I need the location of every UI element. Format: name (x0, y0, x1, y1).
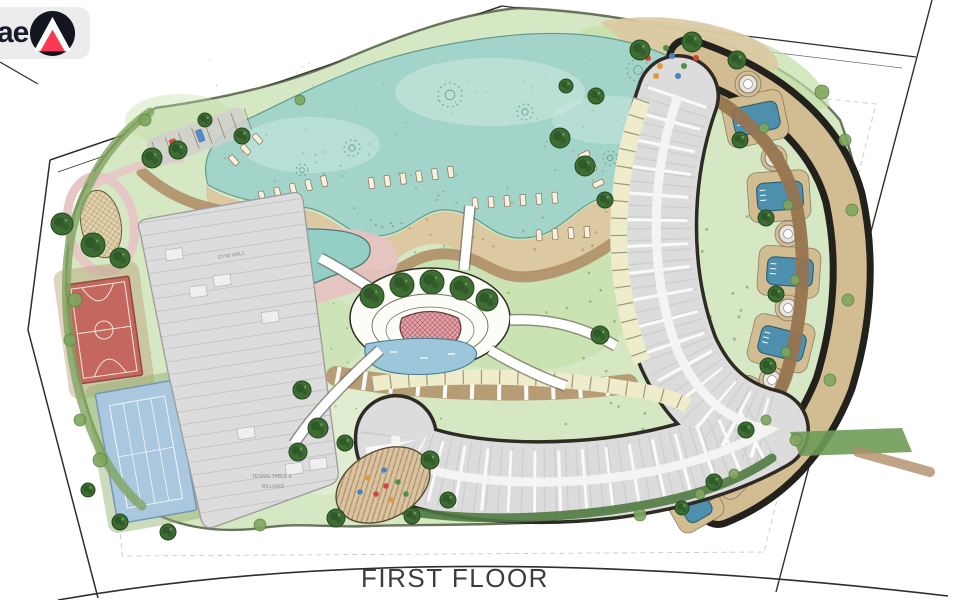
tree (160, 524, 176, 540)
logo-text: ae (0, 18, 28, 48)
tree (675, 501, 689, 515)
furniture-dot (357, 489, 363, 495)
spa-tub (735, 71, 761, 97)
logo-mark-icon (29, 10, 76, 57)
tree (476, 289, 498, 311)
tree (142, 148, 162, 168)
shrub (815, 85, 829, 99)
tree (327, 509, 345, 527)
shrub (790, 434, 802, 446)
shrub (790, 275, 800, 285)
tree (308, 418, 328, 438)
shrub (729, 469, 739, 479)
villa-pool-pocket (756, 245, 821, 299)
site-plan-drawing: GYM HALL TENNIS TABLE & BILLIARD (0, 0, 960, 600)
tree (289, 443, 307, 461)
tree (738, 422, 754, 438)
furniture-dot (383, 483, 389, 489)
play-equipment-dot (693, 55, 699, 61)
tree (768, 286, 784, 302)
tree (81, 483, 95, 497)
tree (597, 192, 613, 208)
shrub (634, 509, 646, 521)
tree (559, 79, 573, 93)
shrub (74, 414, 86, 426)
tree (234, 128, 250, 144)
masterplan-canvas: GYM HALL TENNIS TABLE & BILLIARD (0, 0, 960, 600)
tree (420, 270, 444, 294)
furniture-dot (403, 491, 409, 497)
shrub (295, 95, 305, 105)
tree (169, 141, 187, 159)
tree (758, 210, 774, 226)
tree (421, 451, 439, 469)
shrub (846, 204, 858, 216)
tree (404, 508, 420, 524)
play-equipment-dot (653, 73, 659, 79)
shrub (68, 293, 82, 307)
shrub (759, 123, 769, 133)
tree (81, 233, 105, 257)
play-equipment-dot (669, 53, 675, 59)
shrub (781, 347, 791, 357)
furniture-dot (373, 491, 379, 497)
play-equipment-dot (663, 45, 669, 51)
tree (440, 492, 456, 508)
shrub (783, 200, 793, 210)
tree (588, 88, 604, 104)
play-equipment-dot (681, 63, 687, 69)
tree (337, 435, 353, 451)
tree (728, 51, 746, 69)
shrub (64, 334, 76, 346)
tree (390, 273, 414, 297)
play-equipment-dot (675, 73, 681, 79)
tree (198, 113, 212, 127)
play-equipment-dot (657, 63, 663, 69)
tree (51, 213, 73, 235)
tree (682, 32, 702, 52)
furniture-dot (365, 475, 371, 481)
tree (293, 381, 311, 399)
shrub (93, 453, 107, 467)
tree (550, 128, 570, 148)
floor-title: FIRST FLOOR (361, 563, 549, 593)
shrub (842, 294, 854, 306)
shrub (139, 114, 151, 126)
tree (630, 40, 650, 60)
tree (112, 514, 128, 530)
shrub (761, 415, 771, 425)
tree (575, 156, 595, 176)
shrub (839, 134, 851, 146)
furniture-dot (395, 479, 401, 485)
shrub (254, 519, 266, 531)
furniture-dot (381, 467, 387, 473)
tree (732, 132, 748, 148)
furniture-dot (389, 497, 395, 503)
shrub (824, 374, 836, 386)
tree (760, 358, 776, 374)
tree (110, 248, 130, 268)
tree (360, 284, 384, 308)
tree (591, 326, 609, 344)
shrub (695, 489, 705, 499)
tree (706, 474, 722, 490)
tree (450, 276, 474, 300)
logo: ae (0, 7, 90, 59)
